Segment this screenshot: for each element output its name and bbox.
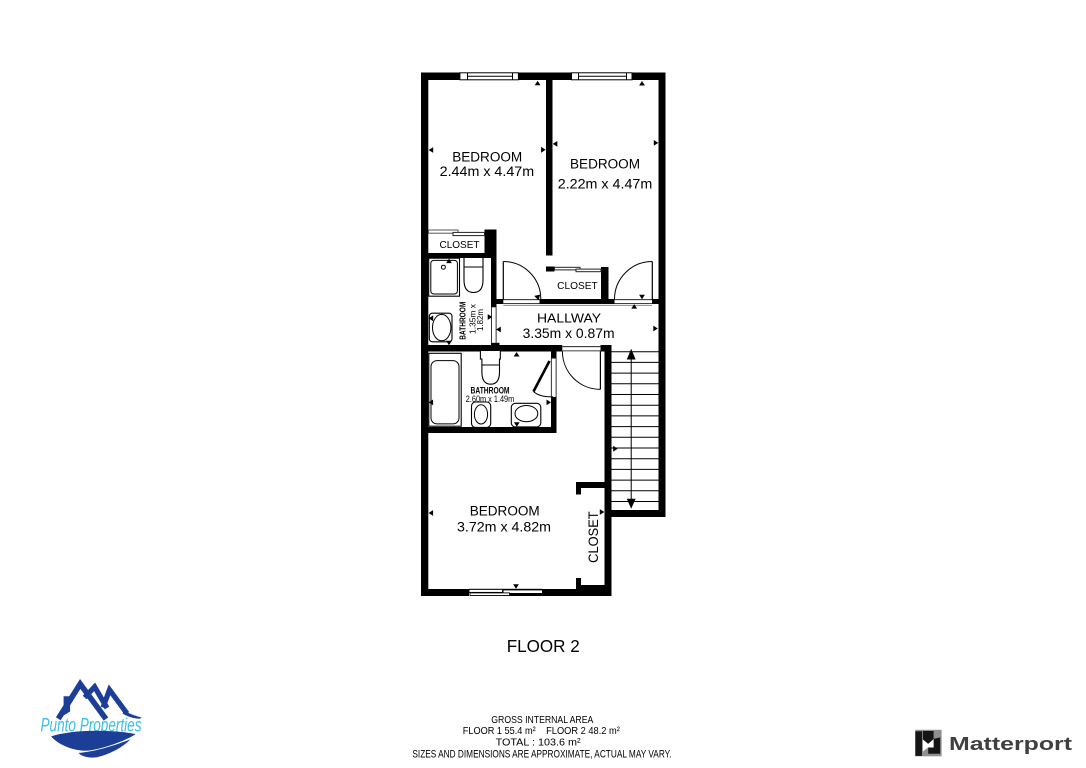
svg-text:BATHROOM: BATHROOM bbox=[459, 302, 468, 340]
svg-text:3.72m x 4.82m: 3.72m x 4.82m bbox=[457, 518, 551, 534]
svg-text:BEDROOM: BEDROOM bbox=[470, 503, 540, 519]
svg-text:SIZES AND DIMENSIONS ARE APPRO: SIZES AND DIMENSIONS ARE APPROXIMATE, AC… bbox=[412, 748, 671, 760]
svg-text:CLOSET: CLOSET bbox=[440, 240, 480, 251]
svg-text:2.44m x 4.47m: 2.44m x 4.47m bbox=[440, 163, 535, 179]
svg-text:CLOSET: CLOSET bbox=[557, 281, 598, 292]
svg-text:2.22m x 4.47m: 2.22m x 4.47m bbox=[558, 175, 653, 191]
svg-text:HALLWAY: HALLWAY bbox=[537, 310, 601, 325]
svg-text:BEDROOM: BEDROOM bbox=[570, 156, 640, 172]
svg-text:FLOOR 2: FLOOR 2 bbox=[507, 636, 580, 656]
svg-text:1.82m: 1.82m bbox=[476, 309, 485, 331]
svg-text:CLOSET: CLOSET bbox=[585, 511, 601, 563]
svg-text:GROSS INTERNAL AREA: GROSS INTERNAL AREA bbox=[491, 714, 593, 726]
svg-text:3.35m x 0.87m: 3.35m x 0.87m bbox=[523, 325, 615, 341]
svg-text:TOTAL : 103.6 m²: TOTAL : 103.6 m² bbox=[496, 736, 582, 748]
svg-text:2.60m x 1.49m: 2.60m x 1.49m bbox=[466, 394, 515, 405]
svg-text:Matterport: Matterport bbox=[949, 733, 1072, 754]
